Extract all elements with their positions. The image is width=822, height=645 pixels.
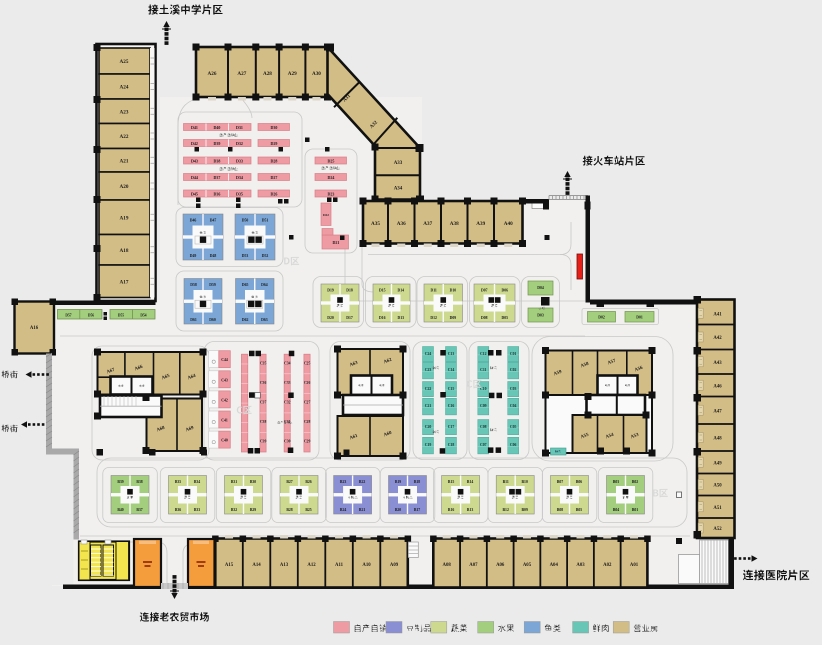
svg-text:C21: C21 — [425, 404, 432, 408]
svg-text:C23: C23 — [425, 368, 432, 372]
svg-text:A01: A01 — [630, 563, 639, 568]
svg-text:A42: A42 — [713, 336, 722, 341]
svg-text:B15: B15 — [448, 480, 454, 484]
svg-text:D55: D55 — [118, 314, 124, 318]
svg-text:A21: A21 — [120, 158, 129, 164]
svg-text:D47: D47 — [210, 219, 217, 223]
svg-text:A05: A05 — [523, 563, 532, 568]
svg-text:D53: D53 — [242, 254, 249, 258]
svg-text:D50: D50 — [242, 219, 249, 223]
svg-text:A16: A16 — [30, 326, 39, 331]
svg-text:D63: D63 — [261, 318, 268, 322]
svg-text:D32: D32 — [236, 141, 243, 146]
svg-text:B09: B09 — [522, 508, 528, 512]
svg-text:A26: A26 — [208, 71, 217, 77]
svg-text:B17: B17 — [414, 508, 420, 512]
svg-text:C38: C38 — [260, 420, 267, 424]
svg-text:B20: B20 — [395, 508, 401, 512]
svg-text:A33: A33 — [394, 161, 403, 166]
svg-text:C36: C36 — [260, 381, 267, 385]
svg-text:D17: D17 — [346, 316, 353, 320]
svg-text:A46: A46 — [713, 384, 722, 389]
svg-text:B07: B07 — [557, 480, 563, 484]
svg-text:C05: C05 — [510, 425, 517, 429]
svg-text:D06: D06 — [501, 289, 508, 293]
svg-text:A43: A43 — [713, 361, 722, 366]
svg-text:D25: D25 — [328, 159, 335, 164]
svg-text:A19: A19 — [120, 215, 129, 221]
svg-text:D54: D54 — [140, 314, 146, 318]
svg-text:D19: D19 — [327, 289, 334, 293]
svg-text:A51: A51 — [713, 506, 722, 511]
svg-text:D13: D13 — [397, 316, 404, 320]
svg-text:D16: D16 — [379, 316, 386, 320]
svg-text:C22: C22 — [425, 387, 432, 391]
svg-text:B05: B05 — [576, 508, 582, 512]
svg-text:D28: D28 — [271, 159, 278, 164]
svg-text:A20: A20 — [120, 184, 129, 190]
svg-text:A04: A04 — [550, 563, 559, 568]
svg-text:A25: A25 — [120, 59, 129, 65]
svg-text:C43: C43 — [221, 378, 228, 382]
svg-text:D24: D24 — [328, 175, 335, 180]
svg-text:A13: A13 — [280, 563, 289, 568]
svg-text:D43: D43 — [191, 159, 198, 164]
svg-text:A52: A52 — [713, 527, 722, 532]
svg-text:B26: B26 — [305, 480, 311, 484]
svg-text:D15: D15 — [379, 289, 386, 293]
svg-text:A39: A39 — [476, 221, 485, 227]
svg-text:C18: C18 — [448, 443, 455, 447]
svg-text:C14: C14 — [448, 368, 455, 372]
svg-text:D44: D44 — [191, 175, 198, 180]
svg-text:A23: A23 — [120, 109, 129, 115]
svg-text:C35: C35 — [260, 362, 267, 366]
svg-text:D37: D37 — [214, 175, 221, 180]
svg-text:C33: C33 — [284, 381, 291, 385]
svg-text:B36: B36 — [175, 508, 181, 512]
svg-text:D31: D31 — [236, 125, 243, 130]
svg-text:D42: D42 — [191, 141, 198, 146]
svg-text:D14: D14 — [397, 289, 404, 293]
svg-text:A07: A07 — [469, 563, 478, 568]
svg-text:A37: A37 — [423, 221, 432, 227]
svg-text:B02: B02 — [632, 480, 638, 484]
svg-text:A24: A24 — [120, 85, 129, 91]
svg-text:C37: C37 — [260, 401, 267, 405]
svg-text:B01: B01 — [632, 508, 638, 512]
svg-text:D58: D58 — [190, 283, 197, 287]
svg-text:A14: A14 — [252, 563, 261, 568]
svg-text:D10: D10 — [450, 289, 457, 293]
svg-text:A41: A41 — [713, 312, 722, 317]
svg-text:C25: C25 — [304, 362, 311, 366]
svg-text:C07: C07 — [480, 443, 487, 447]
svg-text:A17: A17 — [120, 279, 129, 285]
svg-text:C08: C08 — [480, 425, 487, 429]
svg-text:B03: B03 — [613, 480, 619, 484]
svg-text:C01: C01 — [510, 352, 517, 356]
svg-text:D23: D23 — [328, 192, 335, 197]
svg-text:D07: D07 — [481, 289, 488, 293]
svg-text:C09: C09 — [480, 404, 487, 408]
svg-text:B23: B23 — [340, 480, 346, 484]
svg-text:A12: A12 — [307, 563, 316, 568]
svg-text:D56: D56 — [88, 314, 94, 318]
svg-text:A06: A06 — [496, 563, 505, 568]
svg-text:A30: A30 — [312, 71, 321, 77]
svg-text:A34: A34 — [394, 187, 403, 192]
svg-text:D60: D60 — [209, 318, 216, 322]
svg-text:C15: C15 — [448, 387, 455, 391]
svg-text:C30: C30 — [284, 440, 291, 444]
svg-text:D64: D64 — [261, 283, 268, 287]
svg-text:C04: C04 — [510, 404, 517, 408]
svg-text:B21: B21 — [359, 508, 365, 512]
svg-text:B11: B11 — [503, 480, 509, 484]
svg-text:B28: B28 — [286, 508, 292, 512]
svg-text:D09: D09 — [450, 316, 457, 320]
svg-text:B16: B16 — [448, 508, 454, 512]
svg-text:C24: C24 — [425, 352, 432, 356]
svg-text:D65: D65 — [242, 283, 249, 287]
svg-text:D34: D34 — [236, 175, 243, 180]
svg-text:B24: B24 — [340, 508, 346, 512]
svg-text:B40: B40 — [117, 508, 123, 512]
svg-text:D41: D41 — [191, 125, 198, 130]
svg-text:A47: A47 — [713, 409, 722, 414]
svg-text:C32: C32 — [284, 401, 291, 405]
svg-text:C42: C42 — [221, 398, 228, 402]
svg-text:D52: D52 — [262, 254, 269, 258]
svg-text:B06: B06 — [576, 480, 582, 484]
svg-text:D45: D45 — [191, 192, 198, 197]
svg-text:A40: A40 — [504, 221, 513, 227]
svg-text:D05: D05 — [501, 316, 508, 320]
svg-text:B38: B38 — [136, 480, 142, 484]
svg-text:D04: D04 — [537, 286, 544, 290]
svg-text:B10: B10 — [522, 480, 528, 484]
svg-text:A50: A50 — [713, 484, 722, 489]
svg-text:A27: A27 — [237, 71, 246, 77]
svg-text:B08: B08 — [557, 508, 563, 512]
svg-text:D29: D29 — [271, 141, 278, 146]
svg-text:D03: D03 — [537, 314, 544, 318]
svg-text:D27: D27 — [271, 175, 278, 180]
svg-text:D12: D12 — [430, 316, 437, 320]
svg-text:B29: B29 — [250, 508, 256, 512]
svg-text:C13: C13 — [448, 352, 455, 356]
svg-text:B30: B30 — [250, 480, 256, 484]
svg-text:A22: A22 — [120, 134, 129, 140]
svg-text:D21: D21 — [333, 240, 340, 245]
svg-text:A28: A28 — [263, 71, 272, 77]
svg-text:D35: D35 — [236, 192, 243, 197]
svg-text:D26: D26 — [271, 192, 278, 197]
svg-text:A48: A48 — [713, 437, 722, 442]
svg-text:B39: B39 — [117, 480, 123, 484]
svg-text:C34: C34 — [284, 362, 291, 366]
svg-text:C06: C06 — [510, 443, 517, 447]
svg-text:B31: B31 — [231, 480, 237, 484]
svg-text:B37: B37 — [136, 508, 142, 512]
svg-text:D39: D39 — [214, 141, 221, 146]
svg-text:D40: D40 — [214, 125, 221, 130]
svg-text:B04: B04 — [613, 508, 619, 512]
svg-text:A35: A35 — [371, 221, 380, 227]
svg-text:A11: A11 — [335, 563, 344, 568]
svg-text:B22: B22 — [359, 480, 365, 484]
svg-text:D11: D11 — [430, 289, 436, 293]
svg-text:D22: D22 — [323, 213, 329, 217]
svg-text:D08: D08 — [481, 316, 488, 320]
svg-text:B34: B34 — [194, 480, 200, 484]
svg-text:D57: D57 — [65, 314, 71, 318]
svg-text:D46: D46 — [190, 219, 197, 223]
svg-text:C03: C03 — [510, 387, 517, 391]
svg-text:C44: C44 — [221, 358, 228, 362]
svg-text:B14: B14 — [467, 480, 473, 484]
svg-text:A15: A15 — [225, 563, 234, 568]
svg-text:B19: B19 — [395, 480, 401, 484]
svg-text:C27: C27 — [304, 401, 311, 405]
svg-text:A36: A36 — [397, 221, 406, 227]
svg-text:A18: A18 — [120, 248, 129, 254]
svg-text:D20: D20 — [327, 316, 334, 320]
svg-text:A10: A10 — [362, 563, 371, 568]
svg-text:C17: C17 — [448, 425, 455, 429]
svg-text:B12: B12 — [503, 508, 509, 512]
svg-text:A08: A08 — [443, 563, 452, 568]
svg-text:A38: A38 — [450, 221, 459, 227]
svg-text:A29: A29 — [288, 71, 297, 77]
svg-text:C26: C26 — [304, 381, 311, 385]
svg-text:D48: D48 — [210, 254, 217, 258]
svg-text:B25: B25 — [305, 508, 311, 512]
svg-text:B35: B35 — [175, 480, 181, 484]
svg-text:C39: C39 — [260, 440, 267, 444]
svg-text:D51: D51 — [262, 219, 269, 223]
svg-text:B32: B32 — [231, 508, 237, 512]
svg-text:D62: D62 — [242, 318, 249, 322]
svg-text:D02: D02 — [598, 316, 605, 320]
svg-text:D30: D30 — [271, 125, 278, 130]
svg-text:D36: D36 — [214, 192, 221, 197]
svg-text:C11: C11 — [480, 368, 486, 372]
svg-text:D38: D38 — [214, 159, 221, 164]
svg-text:D18: D18 — [346, 289, 353, 293]
svg-text:C29: C29 — [304, 440, 311, 444]
svg-text:A49: A49 — [713, 461, 722, 466]
svg-text:B27: B27 — [286, 480, 292, 484]
svg-text:D01: D01 — [636, 316, 643, 320]
svg-text:A02: A02 — [603, 563, 612, 568]
svg-text:D49: D49 — [190, 254, 197, 258]
svg-text:C12: C12 — [480, 352, 487, 356]
svg-text:C19: C19 — [425, 443, 432, 447]
svg-text:C41: C41 — [221, 419, 228, 423]
svg-text:C20: C20 — [425, 425, 432, 429]
svg-text:D61: D61 — [190, 318, 197, 322]
svg-text:C28: C28 — [304, 420, 311, 424]
svg-text:B13: B13 — [467, 508, 473, 512]
svg-text:C40: C40 — [221, 439, 228, 443]
svg-text:C02: C02 — [510, 368, 517, 372]
svg-text:A09: A09 — [390, 563, 399, 568]
svg-text:B33: B33 — [194, 508, 200, 512]
svg-text:D59: D59 — [209, 283, 216, 287]
svg-text:D33: D33 — [236, 159, 243, 164]
svg-text:C16: C16 — [448, 404, 455, 408]
svg-text:B18: B18 — [414, 480, 420, 484]
svg-text:A03: A03 — [576, 563, 585, 568]
